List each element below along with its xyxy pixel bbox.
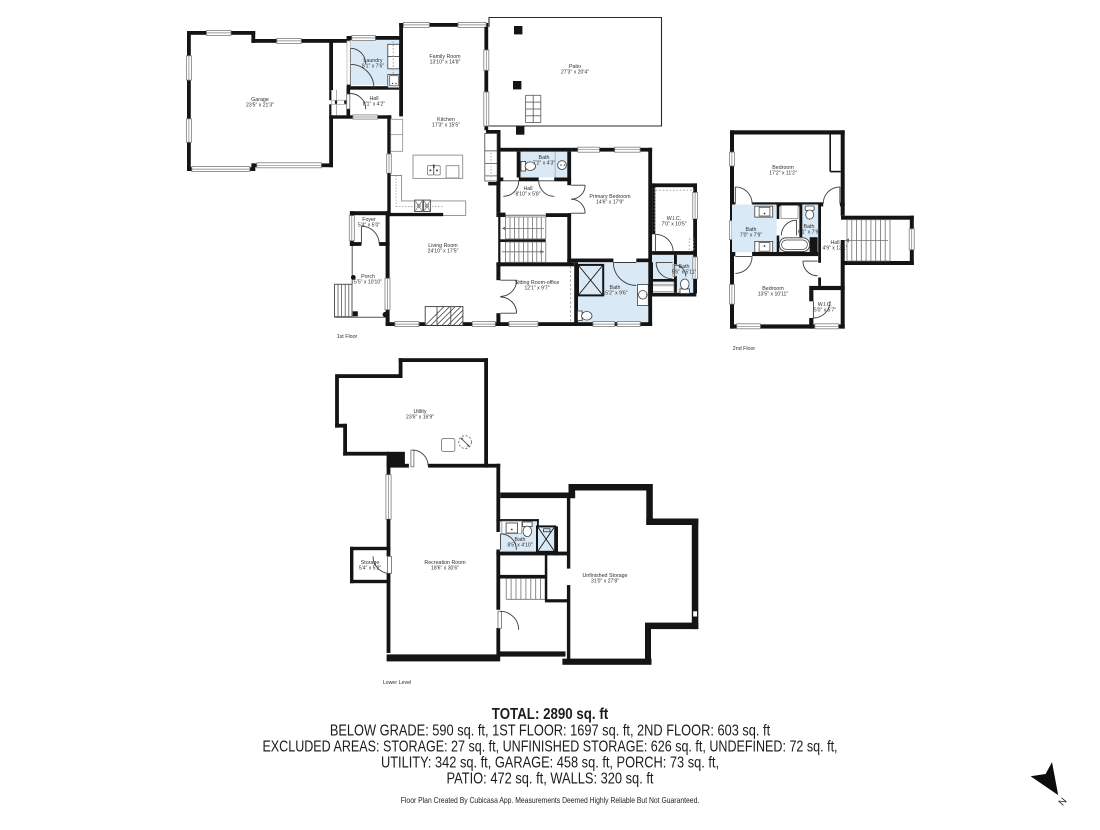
svg-text:15'2" x 9'6": 15'2" x 9'6" [602, 290, 627, 296]
svg-text:7'0" x 7'9": 7'0" x 7'9" [740, 232, 762, 238]
svg-text:6'1" x 7'9": 6'1" x 7'9" [798, 229, 820, 235]
svg-text:7'0" x 10'5": 7'0" x 10'5" [661, 221, 686, 227]
svg-text:5'6" x 5'11": 5'6" x 5'11" [672, 269, 697, 275]
svg-text:5'0" x 5'7": 5'0" x 5'7" [814, 307, 836, 313]
svg-text:BELOW GRADE: 590 sq. ft, 1ST F: BELOW GRADE: 590 sq. ft, 1ST FLOOR: 1697… [330, 723, 771, 740]
svg-text:5'5" x 10'10": 5'5" x 10'10" [354, 279, 382, 285]
svg-text:27'3" x 20'4": 27'3" x 20'4" [561, 69, 589, 75]
svg-text:8'10" x 5'8": 8'10" x 5'8" [515, 191, 540, 197]
svg-text:UTILITY: 342 sq. ft, GARAGE: 4: UTILITY: 342 sq. ft, GARAGE: 458 sq. ft,… [381, 755, 719, 772]
svg-text:Floor Plan Created By Cubicasa: Floor Plan Created By Cubicasa App. Meas… [401, 796, 700, 805]
svg-text:EXCLUDED AREAS: STORAGE: 27 sq: EXCLUDED AREAS: STORAGE: 27 sq. ft, UNFI… [262, 739, 837, 756]
svg-text:24'10" x 17'5": 24'10" x 17'5" [428, 248, 459, 254]
svg-text:18'6" x 30'6": 18'6" x 30'6" [431, 565, 459, 571]
svg-text:17'3" x 15'5": 17'3" x 15'5" [432, 122, 460, 128]
svg-text:23'5" x 21'3": 23'5" x 21'3" [246, 102, 274, 108]
svg-text:4'9" x 13'1": 4'9" x 13'1" [822, 245, 847, 251]
svg-text:12'1" x 9'7": 12'1" x 9'7" [524, 285, 549, 291]
svg-text:5'4" x 5'2": 5'4" x 5'2" [359, 565, 381, 571]
svg-text:8'1" x 4'2": 8'1" x 4'2" [363, 101, 385, 107]
svg-text:PATIO: 472 sq. ft, WALLS: 320: PATIO: 472 sq. ft, WALLS: 320 sq. ft [447, 771, 654, 788]
svg-text:TOTAL: 2890 sq. ft: TOTAL: 2890 sq. ft [492, 706, 609, 723]
svg-text:8'1" x 7'6": 8'1" x 7'6" [362, 63, 384, 69]
svg-text:Lower Level: Lower Level [383, 680, 412, 686]
svg-text:5'4" x 5'0": 5'4" x 5'0" [358, 222, 380, 228]
svg-text:23'6" x 16'9": 23'6" x 16'9" [406, 414, 434, 420]
svg-text:13'10" x 14'8": 13'10" x 14'8" [430, 59, 461, 65]
svg-text:2nd Floor: 2nd Floor [733, 346, 756, 352]
svg-text:7'2" x 4'3": 7'2" x 4'3" [533, 160, 555, 166]
svg-text:8'5" x 4'10": 8'5" x 4'10" [507, 542, 532, 548]
svg-text:17'2" x 11'2": 17'2" x 11'2" [769, 170, 797, 176]
svg-text:1st Floor: 1st Floor [337, 334, 358, 340]
svg-text:31'0" x 27'8": 31'0" x 27'8" [591, 578, 619, 584]
svg-text:13'5" x 10'11": 13'5" x 10'11" [758, 291, 789, 297]
svg-text:14'6" x 17'9": 14'6" x 17'9" [596, 199, 624, 205]
